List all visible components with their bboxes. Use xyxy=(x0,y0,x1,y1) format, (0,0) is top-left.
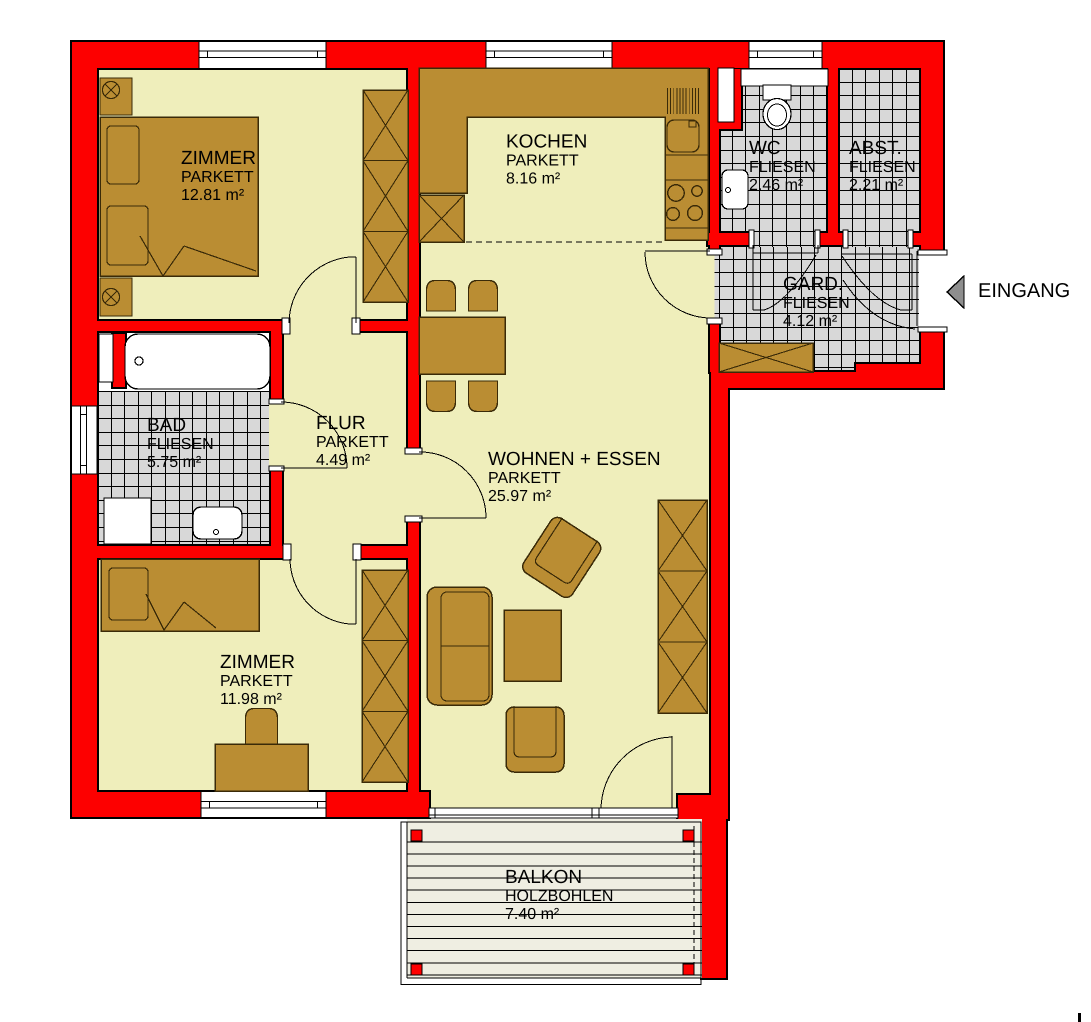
svg-text:PARKETT: PARKETT xyxy=(316,434,389,451)
svg-text:KOCHEN: KOCHEN xyxy=(506,132,587,153)
svg-text:HOLZBOHLEN: HOLZBOHLEN xyxy=(505,888,613,905)
svg-text:25.97 m²: 25.97 m² xyxy=(488,488,552,505)
svg-text:WOHNEN + ESSEN: WOHNEN + ESSEN xyxy=(488,449,661,470)
svg-text:PARKETT: PARKETT xyxy=(488,470,561,487)
svg-text:11.98 m²: 11.98 m² xyxy=(220,691,283,708)
svg-text:EINGANG: EINGANG xyxy=(978,280,1070,302)
svg-text:BALKON: BALKON xyxy=(505,867,582,888)
svg-text:8.16 m²: 8.16 m² xyxy=(506,171,561,188)
svg-text:FLIESEN: FLIESEN xyxy=(749,159,816,176)
svg-text:5.75 m²: 5.75 m² xyxy=(147,454,202,471)
svg-text:4.12 m²: 4.12 m² xyxy=(783,313,838,330)
svg-text:PARKETT: PARKETT xyxy=(506,153,579,170)
svg-text:ZIMMER: ZIMMER xyxy=(181,148,256,169)
svg-text:GARD.: GARD. xyxy=(783,274,843,295)
svg-text:FLIESEN: FLIESEN xyxy=(849,159,916,176)
svg-text:2.46 m²: 2.46 m² xyxy=(749,177,804,194)
svg-text:ABST.: ABST. xyxy=(849,138,902,159)
svg-text:PARKETT: PARKETT xyxy=(220,673,293,690)
svg-text:FLIESEN: FLIESEN xyxy=(147,436,214,453)
svg-text:FLIESEN: FLIESEN xyxy=(783,295,850,312)
svg-text:FLUR: FLUR xyxy=(316,413,366,434)
svg-text:7.40 m²: 7.40 m² xyxy=(505,906,560,923)
svg-text:4.49 m²: 4.49 m² xyxy=(316,452,371,469)
svg-text:PARKETT: PARKETT xyxy=(181,169,254,186)
svg-text:WC: WC xyxy=(749,138,781,159)
svg-text:BAD: BAD xyxy=(147,415,186,436)
svg-text:ZIMMER: ZIMMER xyxy=(220,652,295,673)
svg-text:12.81 m²: 12.81 m² xyxy=(181,187,245,204)
svg-text:2.21 m²: 2.21 m² xyxy=(849,177,904,194)
